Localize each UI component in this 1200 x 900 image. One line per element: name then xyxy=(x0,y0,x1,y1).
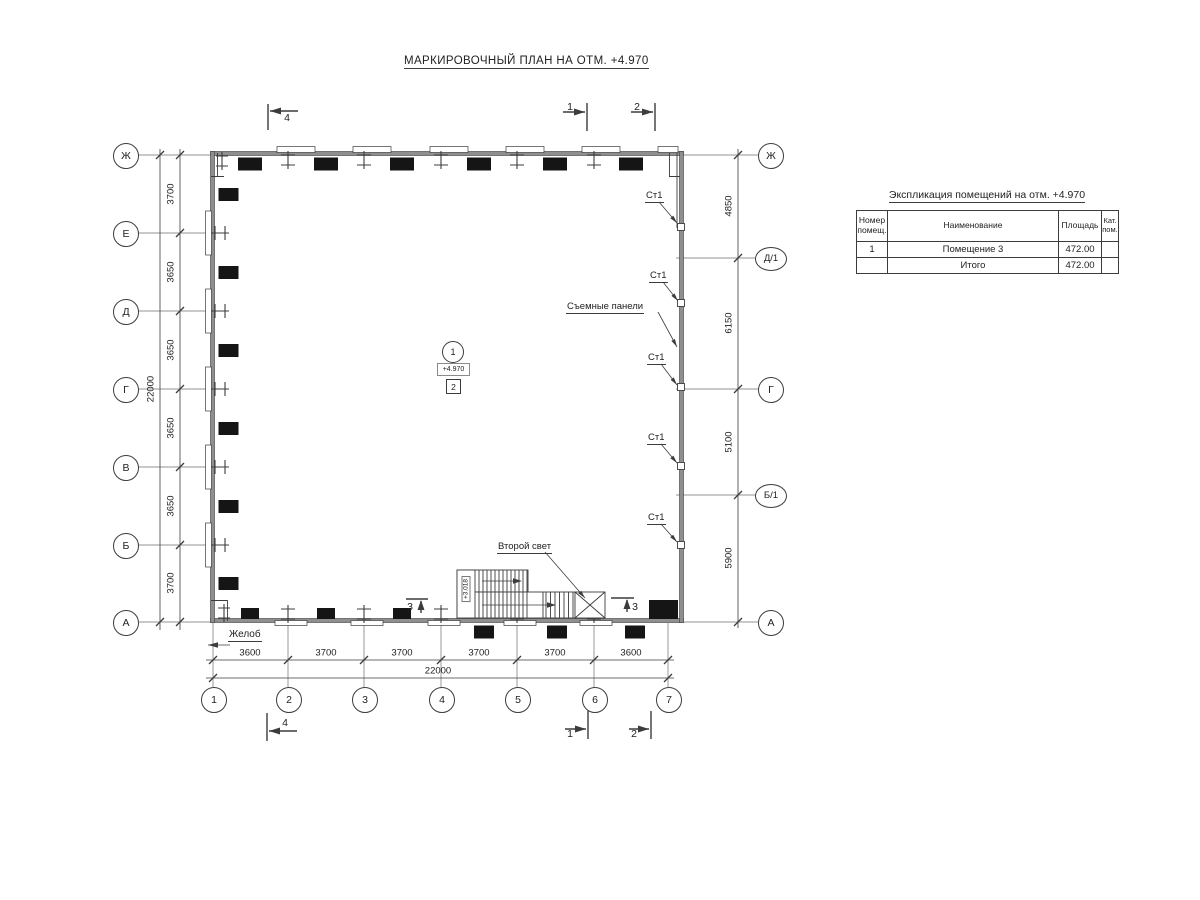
dimension-lines xyxy=(160,149,738,678)
col-header-number: Номер помещ. xyxy=(857,211,888,242)
cell-empty xyxy=(857,258,888,274)
explication-title: Экспликация помещений на отм. +4.970 xyxy=(856,189,1118,201)
axis-bubble-right: А xyxy=(758,610,784,636)
section-label: 1 xyxy=(567,101,573,113)
axis-bubble-right: Б/1 xyxy=(755,484,787,508)
plan-linework xyxy=(0,0,1200,900)
st1-label: Ст1 xyxy=(647,432,666,445)
dim-label: 3650 xyxy=(166,261,177,282)
room-number-marker: 1 xyxy=(442,341,464,363)
dim-label: 6150 xyxy=(724,312,735,333)
section-marks xyxy=(267,103,655,741)
axis-bubble-bottom: 2 xyxy=(276,687,302,713)
col-header-cat: Кат. пом. xyxy=(1102,211,1119,242)
axis-bubble-left: Б xyxy=(113,533,139,559)
axis-bubble-bottom: 6 xyxy=(582,687,608,713)
leader-lines xyxy=(208,202,678,645)
section-label: 3 xyxy=(632,601,638,613)
axis-bubble-left: В xyxy=(113,455,139,481)
axis-bubble-right: Ж xyxy=(758,143,784,169)
dim-label: 3700 xyxy=(166,572,177,593)
table-total-row: Итого 472.00 xyxy=(857,258,1119,274)
drawing-title: МАРКИРОВОЧНЫЙ ПЛАН НА ОТМ. +4.970 xyxy=(404,55,649,69)
cell-empty xyxy=(1102,258,1119,274)
dim-label: 3700 xyxy=(391,648,412,659)
dim-label: 5100 xyxy=(724,431,735,452)
dim-label: 3700 xyxy=(315,648,336,659)
cell-room-number: 1 xyxy=(857,242,888,258)
axis-bubble-bottom: 3 xyxy=(352,687,378,713)
section-label: 2 xyxy=(631,728,637,740)
axis-bubble-left: Г xyxy=(113,377,139,403)
drawing-canvas: МАРКИРОВОЧНЫЙ ПЛАН НА ОТМ. +4.970 Ж Е Д … xyxy=(0,0,1200,900)
table-row: 1 Помещение 3 472.00 xyxy=(857,242,1119,258)
cell-total-label: Итого xyxy=(888,258,1059,274)
dim-total-label: 22000 xyxy=(425,666,451,677)
st1-label: Ст1 xyxy=(645,190,664,203)
axis-bubble-left: Е xyxy=(113,221,139,247)
axis-bubble-bottom: 4 xyxy=(429,687,455,713)
section-label: 4 xyxy=(282,717,288,729)
explication-block: Экспликация помещений на отм. +4.970 Ном… xyxy=(856,189,1118,274)
leader-arrowheads xyxy=(208,216,678,648)
axis-bubble-left: Ж xyxy=(113,143,139,169)
stair-elevation-label: +3.018 xyxy=(462,576,471,602)
cell-room-cat xyxy=(1102,242,1119,258)
removable-panels-label: Съемные панели xyxy=(566,301,644,314)
axis-bubble-bottom: 7 xyxy=(656,687,682,713)
dim-label: 3650 xyxy=(166,495,177,516)
st1-label: Ст1 xyxy=(647,512,666,525)
axis-bubble-right: Д/1 xyxy=(755,247,787,271)
axis-bubble-left: Д xyxy=(113,299,139,325)
dim-label: 3600 xyxy=(620,648,641,659)
col-header-name: Наименование xyxy=(888,211,1059,242)
dim-label: 3700 xyxy=(166,183,177,204)
wall-panels xyxy=(206,147,679,626)
cell-room-area: 472.00 xyxy=(1059,242,1102,258)
axis-bubble-left: А xyxy=(113,610,139,636)
axis-bubble-bottom: 1 xyxy=(201,687,227,713)
second-light-label: Второй свет xyxy=(497,541,552,554)
dim-label: 3700 xyxy=(544,648,565,659)
explication-table: Номер помещ. Наименование Площадь Кат. п… xyxy=(856,210,1119,274)
dim-label: 4850 xyxy=(724,195,735,216)
col-header-area: Площадь xyxy=(1059,211,1102,242)
dim-label: 3650 xyxy=(166,417,177,438)
section-arrowheads xyxy=(269,108,653,735)
dim-total-label: 22000 xyxy=(146,376,157,402)
dim-label: 3700 xyxy=(468,648,489,659)
table-header-row: Номер помещ. Наименование Площадь Кат. п… xyxy=(857,211,1119,242)
st1-label: Ст1 xyxy=(647,352,666,365)
dim-label: 3650 xyxy=(166,339,177,360)
axis-bubble-right: Г xyxy=(758,377,784,403)
st1-label: Ст1 xyxy=(649,270,668,283)
room-elevation-marker: +4.970 xyxy=(437,363,470,376)
section-label: 1 xyxy=(567,728,573,740)
section-label: 2 xyxy=(634,101,640,113)
dim-label: 3600 xyxy=(239,648,260,659)
section-label: 4 xyxy=(284,112,290,124)
dim-label: 5900 xyxy=(724,547,735,568)
cell-total-area: 472.00 xyxy=(1059,258,1102,274)
cell-room-name: Помещение 3 xyxy=(888,242,1059,258)
section-label: 3 xyxy=(407,601,413,613)
axis-bubble-bottom: 5 xyxy=(505,687,531,713)
joint-markers xyxy=(219,158,679,639)
gutter-label: Желоб xyxy=(228,629,262,642)
room-type-marker: 2 xyxy=(446,379,461,394)
